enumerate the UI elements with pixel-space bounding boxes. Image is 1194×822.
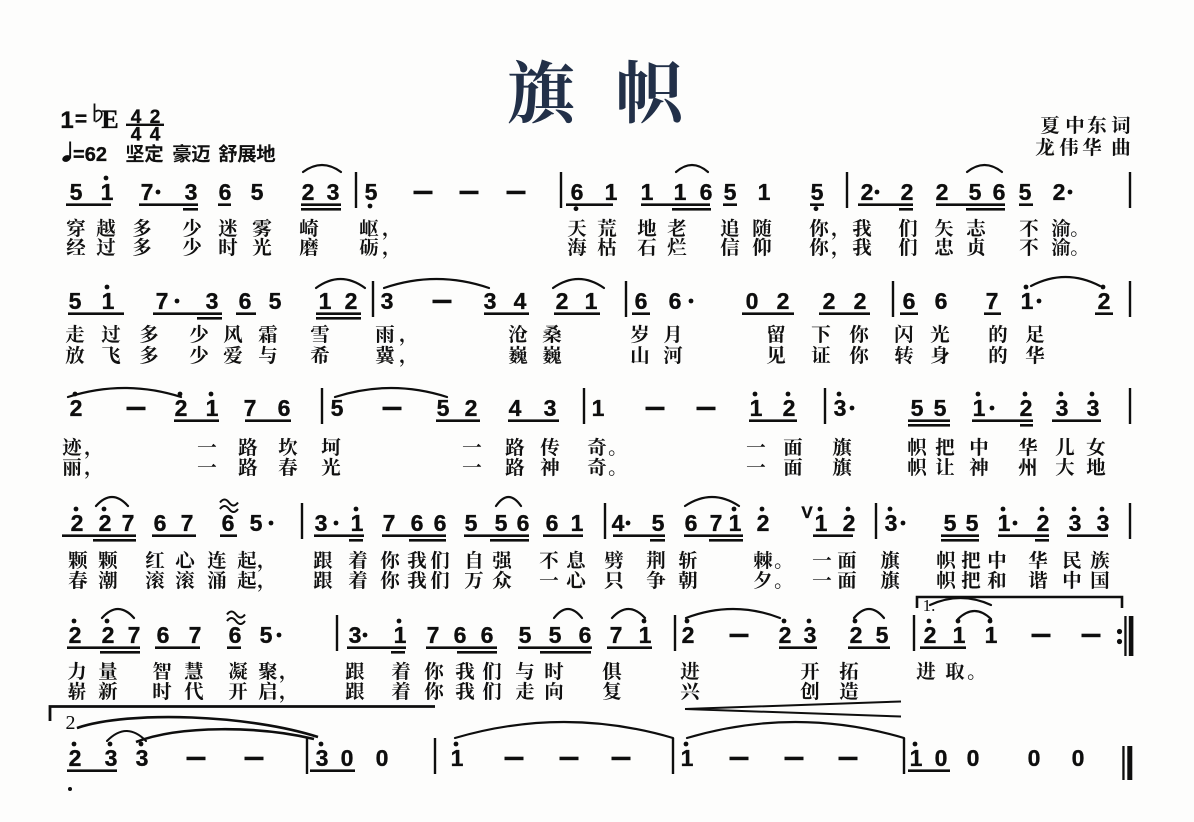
svg-text:7: 7 — [427, 622, 440, 648]
svg-text:7: 7 — [189, 622, 202, 648]
svg-text:5: 5 — [465, 510, 478, 536]
svg-text:6: 6 — [935, 288, 948, 314]
svg-text:5: 5 — [811, 179, 824, 205]
svg-text:2: 2 — [302, 179, 315, 205]
svg-text:5: 5 — [966, 510, 979, 536]
svg-text:7: 7 — [986, 288, 999, 314]
svg-text:5: 5 — [724, 179, 737, 205]
svg-text:2: 2 — [777, 288, 790, 314]
svg-text:6: 6 — [685, 510, 698, 536]
svg-text:2: 2 — [682, 622, 695, 648]
svg-text:1: 1 — [592, 395, 605, 421]
svg-text:7: 7 — [710, 510, 723, 536]
svg-text:2: 2 — [936, 179, 949, 205]
svg-text:2: 2 — [99, 510, 112, 536]
svg-text:4: 4 — [514, 288, 527, 314]
svg-text:7: 7 — [383, 510, 396, 536]
svg-text:5: 5 — [251, 179, 264, 205]
svg-text:2: 2 — [102, 622, 115, 648]
svg-text:3: 3 — [327, 179, 340, 205]
svg-text:2: 2 — [757, 510, 770, 536]
svg-text:2: 2 — [901, 179, 914, 205]
svg-text:3: 3 — [381, 288, 394, 314]
svg-text:6: 6 — [579, 622, 592, 648]
svg-text:3: 3 — [834, 395, 847, 421]
svg-text:6: 6 — [571, 179, 584, 205]
svg-text:1: 1 — [985, 622, 998, 648]
svg-text:0: 0 — [967, 745, 980, 771]
svg-text:6: 6 — [481, 622, 494, 648]
svg-text:6: 6 — [903, 288, 916, 314]
svg-text:7: 7 — [610, 622, 623, 648]
svg-text:2: 2 — [175, 395, 188, 421]
svg-text:3: 3 — [349, 622, 362, 648]
svg-text:4: 4 — [509, 395, 522, 421]
svg-text:5: 5 — [365, 179, 378, 205]
svg-text:1: 1 — [571, 510, 584, 536]
svg-text:3: 3 — [1069, 510, 1082, 536]
svg-text:6: 6 — [239, 288, 252, 314]
svg-text:3: 3 — [1087, 395, 1100, 421]
svg-text:5: 5 — [437, 395, 450, 421]
svg-text:5: 5 — [1019, 179, 1032, 205]
svg-text:1: 1 — [641, 179, 654, 205]
svg-text:3: 3 — [206, 288, 219, 314]
svg-text:6: 6 — [454, 622, 467, 648]
svg-text:6: 6 — [157, 622, 170, 648]
svg-text:2: 2 — [556, 288, 569, 314]
svg-text:1: 1 — [60, 107, 73, 134]
svg-text:1: 1 — [729, 510, 742, 536]
svg-text:6: 6 — [411, 510, 424, 536]
svg-text:6: 6 — [517, 510, 530, 536]
svg-text:2: 2 — [823, 288, 836, 314]
svg-text:3: 3 — [544, 395, 557, 421]
svg-text:2: 2 — [924, 622, 937, 648]
svg-text:2: 2 — [783, 395, 796, 421]
svg-text:3: 3 — [1056, 395, 1069, 421]
svg-text:1: 1 — [750, 395, 763, 421]
svg-text:3: 3 — [316, 745, 329, 771]
svg-text:2: 2 — [71, 510, 84, 536]
svg-text:1: 1 — [681, 745, 694, 771]
svg-text:2: 2 — [1020, 395, 1033, 421]
svg-text:0: 0 — [1072, 745, 1085, 771]
svg-text:1: 1 — [998, 510, 1011, 536]
svg-text:=: = — [75, 108, 87, 131]
svg-text:3: 3 — [804, 622, 817, 648]
svg-text:2: 2 — [861, 179, 874, 205]
svg-text:3: 3 — [185, 179, 198, 205]
svg-text:1: 1 — [585, 288, 598, 314]
svg-text:1: 1 — [319, 288, 332, 314]
svg-text:7: 7 — [244, 395, 257, 421]
svg-text:1: 1 — [953, 622, 966, 648]
svg-text:5: 5 — [69, 288, 82, 314]
svg-text:6: 6 — [229, 622, 242, 648]
svg-text:5: 5 — [944, 510, 957, 536]
svg-text:5: 5 — [519, 622, 532, 648]
svg-text:3: 3 — [484, 288, 497, 314]
svg-text:5: 5 — [269, 288, 282, 314]
svg-text:0: 0 — [746, 288, 759, 314]
svg-text:1: 1 — [206, 395, 219, 421]
svg-text:E: E — [101, 105, 118, 134]
svg-text:1: 1 — [451, 745, 464, 771]
svg-text:2: 2 — [779, 622, 792, 648]
svg-text:2: 2 — [69, 622, 82, 648]
svg-text:5: 5 — [70, 179, 83, 205]
svg-text:2: 2 — [345, 288, 358, 314]
svg-text:1: 1 — [639, 622, 652, 648]
svg-text:6: 6 — [669, 288, 682, 314]
svg-text:0: 0 — [341, 745, 354, 771]
svg-text:6: 6 — [546, 510, 559, 536]
svg-text:V: V — [801, 503, 813, 522]
svg-text:1: 1 — [758, 179, 771, 205]
svg-text:7: 7 — [128, 622, 141, 648]
svg-text:4: 4 — [131, 125, 142, 146]
svg-text:2: 2 — [1053, 179, 1066, 205]
svg-text:1: 1 — [1021, 288, 1034, 314]
svg-text:3: 3 — [885, 510, 898, 536]
svg-text:3: 3 — [136, 745, 149, 771]
svg-text:1.: 1. — [923, 596, 936, 615]
svg-text:7: 7 — [156, 288, 169, 314]
svg-text:2.: 2. — [66, 712, 81, 734]
svg-text:6: 6 — [434, 510, 447, 536]
svg-text:1: 1 — [394, 622, 407, 648]
svg-text:5: 5 — [911, 395, 924, 421]
svg-text:2: 2 — [1037, 510, 1050, 536]
svg-text:2: 2 — [69, 745, 82, 771]
svg-text:6: 6 — [154, 510, 167, 536]
svg-text:5: 5 — [250, 510, 263, 536]
svg-text:2: 2 — [850, 622, 863, 648]
svg-text:0: 0 — [1028, 745, 1041, 771]
svg-text:5: 5 — [934, 395, 947, 421]
svg-text:5: 5 — [549, 622, 562, 648]
svg-text:6: 6 — [993, 179, 1006, 205]
svg-text:2: 2 — [1098, 288, 1111, 314]
svg-text:2: 2 — [843, 510, 856, 536]
svg-text:1: 1 — [815, 510, 828, 536]
svg-text:0: 0 — [935, 745, 948, 771]
svg-text:7: 7 — [141, 179, 154, 205]
svg-text:=62: =62 — [73, 144, 107, 166]
svg-text:5: 5 — [331, 395, 344, 421]
svg-text:1: 1 — [101, 179, 114, 205]
svg-text:6: 6 — [700, 179, 713, 205]
svg-text:1: 1 — [973, 395, 986, 421]
svg-text:6: 6 — [219, 179, 232, 205]
svg-text:1: 1 — [910, 745, 923, 771]
svg-text:2: 2 — [854, 288, 867, 314]
svg-text:7: 7 — [122, 510, 135, 536]
svg-text:5: 5 — [969, 179, 982, 205]
svg-text:1: 1 — [102, 288, 115, 314]
svg-text:0: 0 — [376, 745, 389, 771]
svg-text:7: 7 — [181, 510, 194, 536]
svg-text:5: 5 — [260, 622, 273, 648]
svg-text:5: 5 — [876, 622, 889, 648]
svg-text:1: 1 — [351, 510, 364, 536]
svg-text:3: 3 — [105, 745, 118, 771]
svg-text:6: 6 — [278, 395, 291, 421]
svg-text:2: 2 — [465, 395, 478, 421]
svg-text:3: 3 — [1097, 510, 1110, 536]
svg-text:5: 5 — [652, 510, 665, 536]
svg-text:6: 6 — [635, 288, 648, 314]
svg-text:1: 1 — [605, 179, 618, 205]
svg-text:4: 4 — [612, 510, 625, 536]
svg-text:6: 6 — [222, 510, 235, 536]
svg-text:5: 5 — [495, 510, 508, 536]
svg-text:1: 1 — [674, 179, 687, 205]
svg-text:2: 2 — [70, 395, 83, 421]
svg-text:3: 3 — [315, 510, 328, 536]
svg-text:4: 4 — [150, 125, 161, 146]
